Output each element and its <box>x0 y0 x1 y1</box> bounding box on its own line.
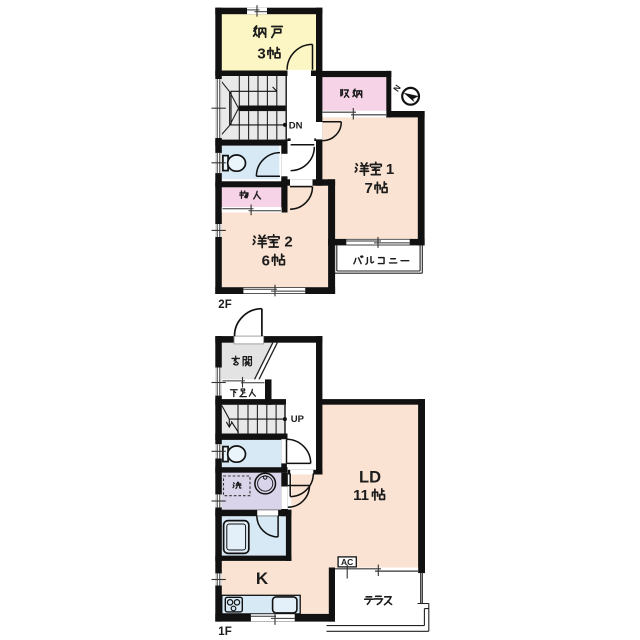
svg-text:1: 1 <box>386 161 394 178</box>
svg-text:AC: AC <box>341 557 353 567</box>
svg-text:1F: 1F <box>218 626 231 638</box>
svg-text:3: 3 <box>257 46 265 63</box>
svg-text:7: 7 <box>365 180 373 197</box>
svg-text:K: K <box>256 569 269 588</box>
svg-text:N: N <box>391 83 403 94</box>
svg-text:6: 6 <box>262 252 270 269</box>
svg-text:2: 2 <box>284 234 292 251</box>
svg-text:UP: UP <box>291 414 305 425</box>
svg-text:DN: DN <box>289 121 303 132</box>
svg-text:LD: LD <box>359 468 381 486</box>
svg-text:2F: 2F <box>218 299 231 311</box>
svg-text:11: 11 <box>353 487 369 504</box>
